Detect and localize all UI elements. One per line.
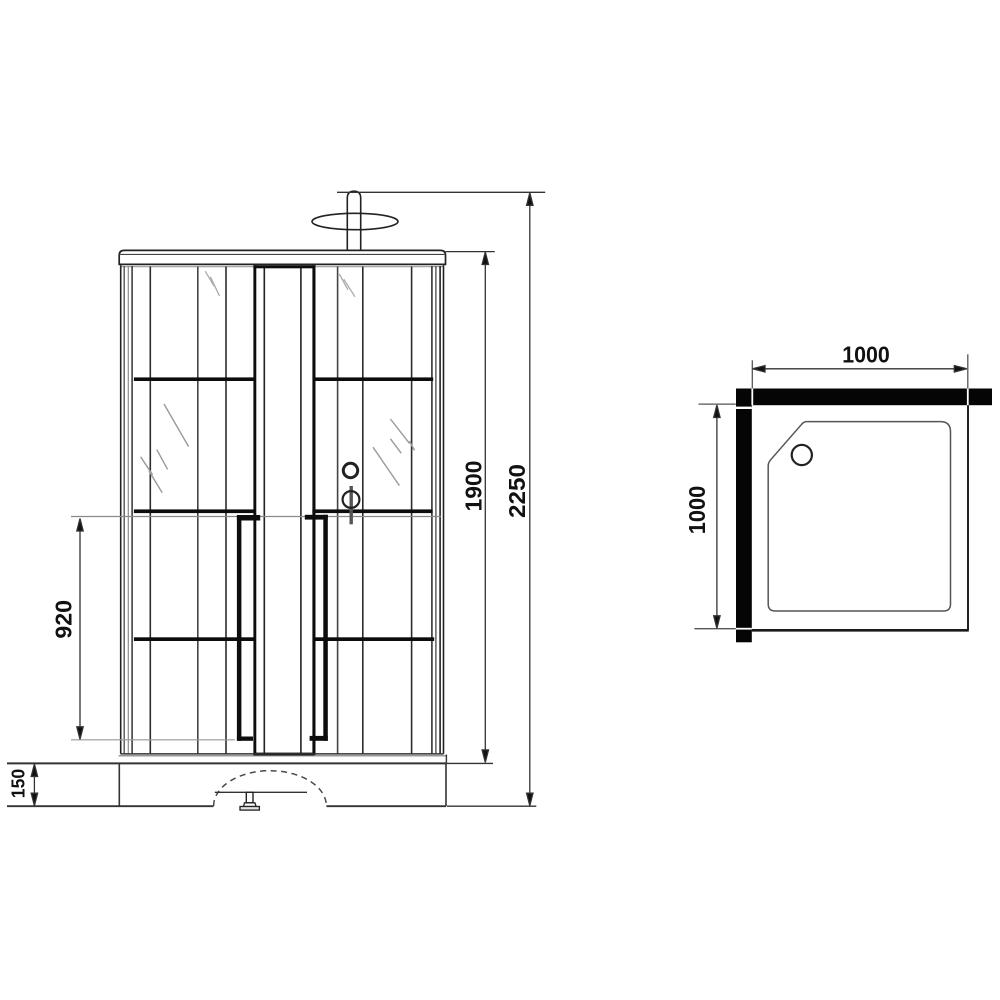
svg-text:1900: 1900 bbox=[461, 461, 487, 512]
svg-text:150: 150 bbox=[8, 769, 29, 798]
svg-text:1000: 1000 bbox=[684, 486, 710, 535]
svg-text:920: 920 bbox=[51, 600, 77, 639]
svg-text:2250: 2250 bbox=[504, 464, 530, 518]
svg-text:1000: 1000 bbox=[842, 341, 890, 367]
